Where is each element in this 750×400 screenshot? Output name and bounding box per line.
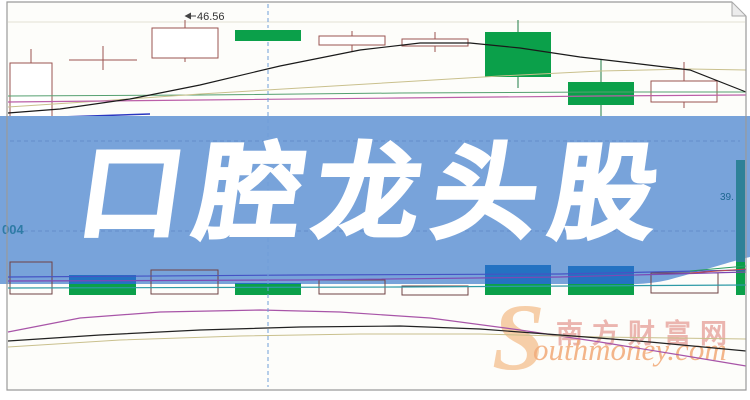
banner-title: 口腔龙头股	[0, 142, 750, 246]
page: S 南方财富网 outhmoney.com 46.56 004 39. 口腔龙头…	[0, 0, 750, 400]
